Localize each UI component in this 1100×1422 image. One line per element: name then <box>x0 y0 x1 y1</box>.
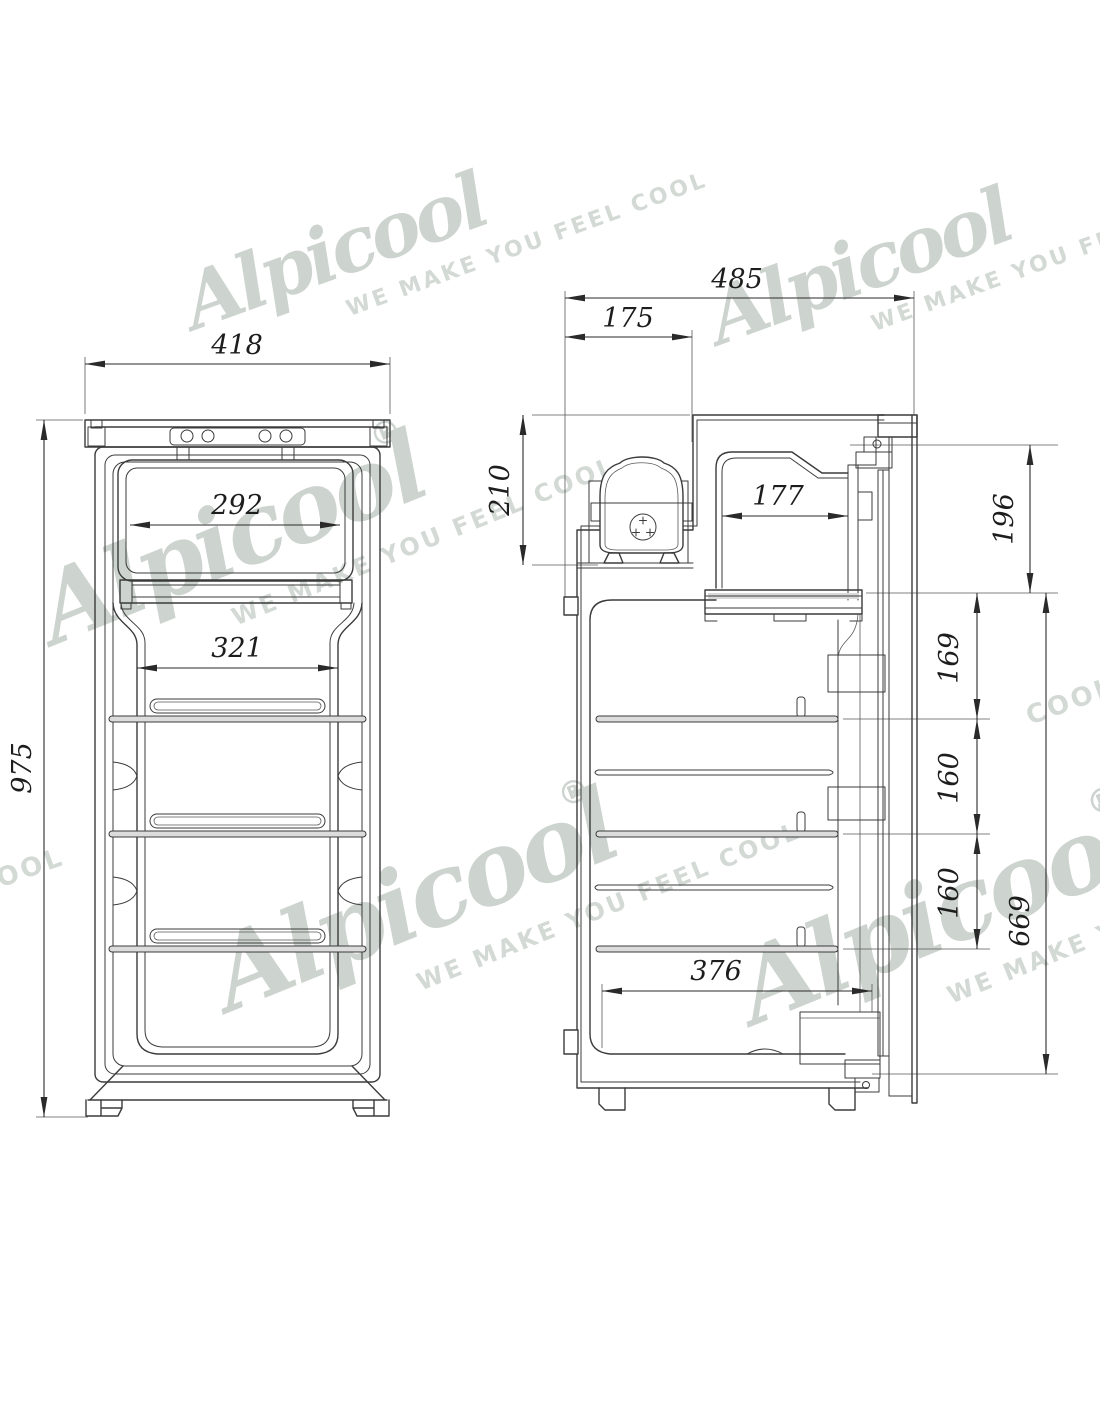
dim-top-shelf-gap: 169 <box>934 593 977 719</box>
shelf-bar <box>596 716 838 722</box>
right-wall-block-lower <box>828 787 885 820</box>
side-shelf-2 <box>596 812 838 837</box>
dimension-label: 169 <box>934 632 965 684</box>
dimension-label: 175 <box>602 303 654 334</box>
bar-detail <box>705 596 862 621</box>
dimension-label: 321 <box>211 633 263 664</box>
watermark-script: Alpicool <box>712 778 1100 1050</box>
dimension-label: 485 <box>710 264 763 295</box>
side-feet <box>599 1088 855 1110</box>
compressor-platform <box>577 563 693 568</box>
dim-freezer-inner-depth: 177 <box>722 481 848 516</box>
dimension-label: 160 <box>934 752 965 804</box>
freezer-bottom-bar <box>705 590 862 621</box>
wire-shelf <box>109 946 366 952</box>
freezer-liner-outer <box>716 452 848 588</box>
hinge-pin <box>873 440 881 448</box>
dimension-label: 196 <box>989 493 1020 545</box>
bottom-bevel <box>88 1066 387 1100</box>
freezer-bracket <box>848 437 876 600</box>
wire-shelf-row-1 <box>109 699 366 722</box>
shelf-handle <box>150 814 325 828</box>
wire-shelf <box>109 716 366 722</box>
dimension-label: 975 <box>7 742 38 794</box>
door-bottom-hinge <box>845 1060 880 1092</box>
shelf-bar <box>596 831 838 837</box>
rear-tab-lower <box>564 1030 578 1054</box>
technical-drawing: Alpicool WE MAKE YOU FEEL COOL Alpicool … <box>0 0 1100 1422</box>
watermark-layer: Alpicool WE MAKE YOU FEEL COOL Alpicool … <box>0 81 1100 1083</box>
dim-shelf-width: 321 <box>137 633 338 668</box>
dim-freezer-front-height: 196 <box>989 445 1030 593</box>
shelf-handle-inner <box>154 817 321 825</box>
shelf-handle <box>150 699 325 713</box>
compressor <box>591 457 692 563</box>
dimension-label: 418 <box>210 330 263 361</box>
door-top-hinge <box>856 437 892 468</box>
shelf-handle-inner <box>154 702 321 710</box>
compressor-feet <box>604 553 679 563</box>
dim-front-overall-width: 418 <box>85 330 390 364</box>
floor-hump <box>747 1049 783 1054</box>
dimension-label: 210 <box>485 464 516 517</box>
watermark-script: Alpicool <box>165 155 498 349</box>
dim-compressor-recess-depth: 175 <box>565 303 692 337</box>
wire-shelf-row-2 <box>109 814 366 837</box>
hinge-body <box>864 437 892 452</box>
hinge-plate-holes <box>181 430 292 442</box>
compressor-shell <box>600 457 683 553</box>
rear-tab-upper <box>564 597 578 615</box>
watermark-top-right: Alpicool WE MAKE YOU FEEL COOL <box>690 96 1100 390</box>
shelf-bar <box>596 946 838 952</box>
dimension-label: 376 <box>690 956 742 987</box>
side-shelf-1 <box>596 697 838 722</box>
dimension-label: 669 <box>1005 895 1036 947</box>
dimension-label: 177 <box>752 481 804 512</box>
watermark-bottom-right: Alpicool ® WE MAKE YOU FEEL COOL <box>711 710 1100 1084</box>
hinge-bracket <box>856 452 892 468</box>
right-wall-block-upper <box>828 655 885 692</box>
dim-middle-shelf-gap: 160 <box>934 719 977 834</box>
dimension-label: 160 <box>934 867 965 919</box>
hinge-pin-block <box>855 1078 879 1092</box>
freezer-liner-inner <box>722 458 848 588</box>
front-feet <box>86 1100 389 1116</box>
dim-front-overall-height: 975 <box>7 420 44 1117</box>
door-top-cap <box>878 415 917 437</box>
watermark-fragment-right: COOL <box>1022 672 1100 732</box>
door-panel <box>912 415 917 1103</box>
watermark-mid-left: Alpicool ® WE MAKE YOU FEEL COOL <box>13 340 620 700</box>
wire-shelf <box>109 831 366 837</box>
watermark-fragment-left: L COOL <box>0 842 68 912</box>
door-inner-face <box>889 437 912 1096</box>
dimension-label: 292 <box>210 490 263 521</box>
shelf-peg <box>797 697 805 717</box>
hinge-bracket <box>845 1060 880 1078</box>
